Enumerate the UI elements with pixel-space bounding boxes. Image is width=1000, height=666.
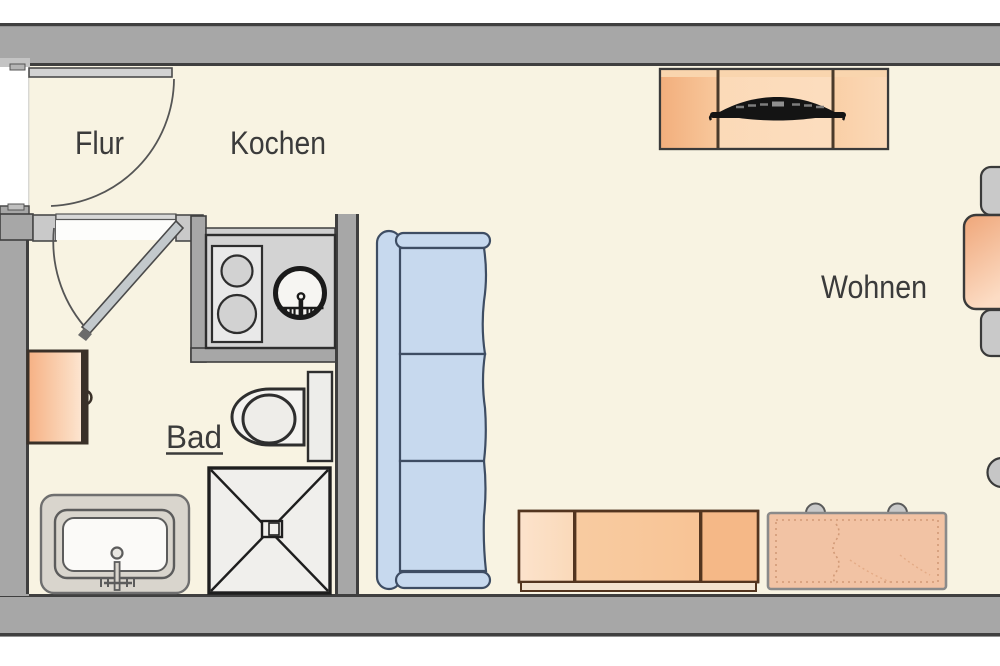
svg-text:Flur: Flur	[75, 125, 124, 161]
svg-text:Kochen: Kochen	[230, 125, 326, 161]
svg-text:Wohnen: Wohnen	[821, 269, 927, 305]
svg-text:Bad: Bad	[166, 419, 222, 455]
